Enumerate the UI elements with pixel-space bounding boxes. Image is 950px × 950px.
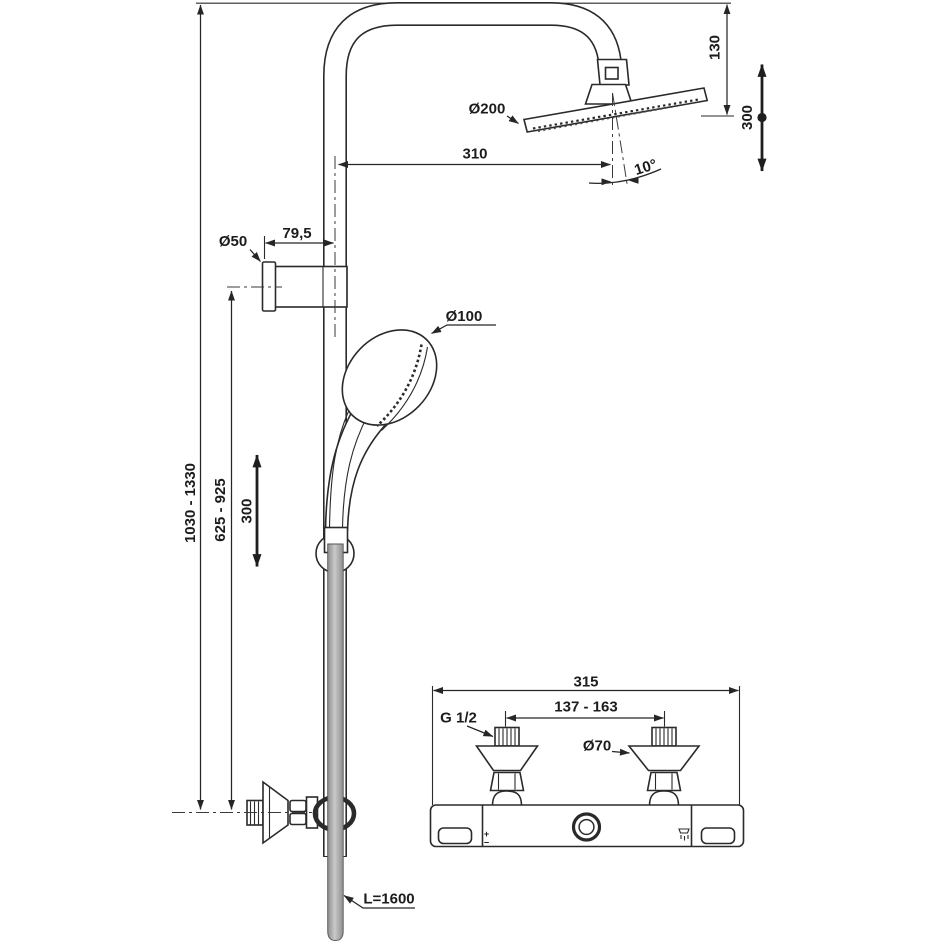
bracket-projection-label: 79,5 xyxy=(282,225,311,242)
inlet-cone-right xyxy=(629,746,699,771)
inlet-nut-left xyxy=(491,773,524,791)
inlet-rosette-label: Ø70 xyxy=(583,738,611,755)
inlet-thread-label: G 1/2 xyxy=(440,710,477,727)
dim-inlet-rosette: Ø70 xyxy=(583,738,630,755)
mixer-width-label: 315 xyxy=(573,674,598,691)
rainhead-angle-label: 10° xyxy=(632,156,659,179)
inlet-centres-label: 137 - 163 xyxy=(554,699,617,716)
dim-rainhead-projection: 310 xyxy=(339,146,611,165)
rainhead-diameter-label: Ø200 xyxy=(469,101,506,118)
mixer-handle-right xyxy=(702,828,735,844)
drawing-canvas: 1030 - 1330 625 - 925 300 Ø50 79,5 Ø100 … xyxy=(0,0,950,950)
hose-length-label: L=1600 xyxy=(363,891,414,908)
inlet-nut-right xyxy=(648,773,681,791)
dim-inlet-centres: 137 - 163 xyxy=(506,699,665,727)
dim-bracket: Ø50 79,5 xyxy=(219,225,334,262)
dim-inlet-thread: G 1/2 xyxy=(440,710,493,737)
dim-handset-travel: 300 xyxy=(239,455,258,567)
rosette-diameter-label: Ø50 xyxy=(219,233,247,250)
rainhead xyxy=(524,60,707,188)
dim-overall-height: 1030 - 1330 xyxy=(182,5,201,810)
wall-bracket xyxy=(227,262,347,311)
technical-drawing-shower-system: 1030 - 1330 625 - 925 300 Ø50 79,5 Ø100 … xyxy=(0,0,950,950)
rainhead-drop-label: 130 xyxy=(707,35,724,60)
handset-travel-label: 300 xyxy=(239,498,256,523)
mixer-handle-left xyxy=(439,828,472,844)
rainhead-adjustment-label: 300 xyxy=(739,105,756,130)
thermostatic-mixer: + − 315 137 - 163 G 1/2 xyxy=(431,674,744,848)
dim-hose-length: L=1600 xyxy=(344,891,415,909)
dim-rainhead-diameter: Ø200 xyxy=(469,101,519,124)
shower-hose xyxy=(328,544,344,941)
mixer-minus-mark: − xyxy=(484,838,489,848)
rainhead-projection-label: 310 xyxy=(462,146,487,163)
dim-rainhead-adjustment: 300 xyxy=(739,65,767,172)
overall-height-label: 1030 - 1330 xyxy=(182,463,199,543)
inlet-cone-left xyxy=(477,746,538,771)
dim-handspray-diameter: Ø100 xyxy=(432,308,497,334)
dim-handset-height: 625 - 925 xyxy=(212,291,232,810)
handset-height-label: 625 - 925 xyxy=(212,478,229,541)
handspray-diameter-label: Ø100 xyxy=(446,308,483,325)
